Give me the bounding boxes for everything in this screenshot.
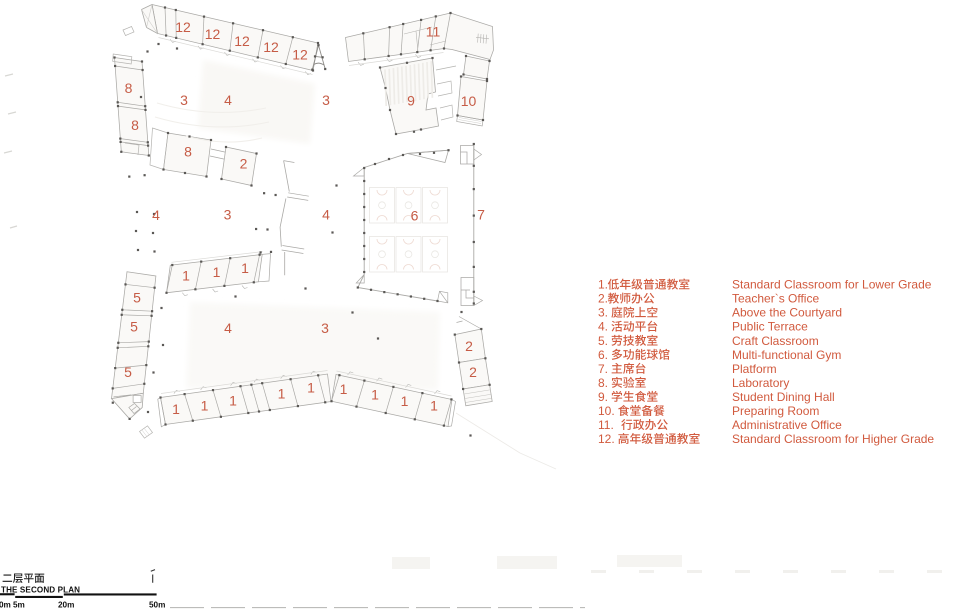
- svg-text:5: 5: [130, 319, 138, 335]
- svg-text:5m: 5m: [13, 601, 25, 610]
- svg-text:12: 12: [205, 26, 221, 42]
- svg-text:3: 3: [180, 92, 188, 108]
- svg-text:1: 1: [340, 381, 348, 397]
- svg-text:6: 6: [411, 208, 419, 224]
- svg-text:Platform: Platform: [732, 362, 777, 376]
- svg-text:2.: 2.: [598, 292, 608, 306]
- svg-text:4: 4: [224, 92, 232, 108]
- svg-text:1.: 1.: [598, 278, 608, 292]
- svg-text:11.: 11.: [598, 418, 620, 432]
- svg-text:5: 5: [124, 364, 132, 380]
- svg-text:9: 9: [407, 93, 415, 109]
- svg-text:1: 1: [241, 260, 249, 276]
- svg-text:8: 8: [131, 117, 139, 133]
- svg-text:5: 5: [133, 290, 141, 306]
- svg-text:3: 3: [224, 207, 232, 223]
- svg-text:11: 11: [426, 24, 441, 40]
- svg-text:Administrative Office: Administrative Office: [732, 418, 842, 432]
- svg-text:Multi-functional Gym: Multi-functional Gym: [732, 348, 841, 362]
- svg-text:10.: 10.: [598, 404, 618, 418]
- svg-text:Public Terrace: Public Terrace: [732, 320, 808, 334]
- svg-text:3: 3: [321, 320, 329, 336]
- svg-text:Above the Courtyard: Above the Courtyard: [732, 306, 842, 320]
- svg-text:1: 1: [182, 268, 190, 284]
- svg-text:12: 12: [292, 47, 308, 63]
- svg-text:9.: 9.: [598, 390, 611, 404]
- svg-text:4.: 4.: [598, 320, 611, 334]
- svg-text:Preparing Room: Preparing Room: [732, 404, 819, 418]
- svg-text:12: 12: [234, 33, 250, 49]
- svg-text:8: 8: [125, 80, 133, 96]
- svg-text:2: 2: [465, 338, 473, 354]
- svg-text:1: 1: [307, 380, 315, 396]
- svg-text:1: 1: [201, 398, 209, 414]
- svg-text:Teacher`s Office: Teacher`s Office: [732, 292, 819, 306]
- svg-text:4: 4: [322, 207, 330, 223]
- svg-text:THE SECOND PLAN: THE SECOND PLAN: [1, 585, 80, 594]
- svg-text:1: 1: [278, 386, 286, 402]
- svg-text:1: 1: [371, 387, 379, 403]
- svg-text:1: 1: [229, 393, 237, 409]
- svg-text:12: 12: [263, 39, 279, 55]
- svg-text:0m: 0m: [0, 601, 11, 610]
- svg-text:2: 2: [240, 156, 248, 172]
- svg-text:4: 4: [224, 320, 232, 336]
- svg-text:12: 12: [175, 19, 191, 35]
- svg-text:5.: 5.: [598, 334, 611, 348]
- svg-text:Craft Classroom: Craft Classroom: [732, 334, 819, 348]
- svg-text:1: 1: [430, 398, 438, 414]
- svg-text:20m: 20m: [58, 601, 74, 610]
- svg-text:7: 7: [477, 207, 485, 223]
- svg-text:Standard Classroom for Higher: Standard Classroom for Higher Grade: [732, 432, 934, 446]
- svg-text:1: 1: [172, 401, 180, 417]
- svg-text:10: 10: [461, 93, 477, 109]
- svg-text:4: 4: [152, 207, 160, 223]
- svg-text:7.: 7.: [598, 362, 611, 376]
- svg-text:Standard Classroom for Lower G: Standard Classroom for Lower Grade: [732, 278, 932, 292]
- svg-text:3.: 3.: [598, 306, 611, 320]
- svg-text:1: 1: [401, 393, 409, 409]
- svg-text:8: 8: [184, 144, 192, 160]
- svg-text:Student Dining Hall: Student Dining Hall: [732, 390, 835, 404]
- svg-text:2: 2: [469, 364, 477, 380]
- svg-text:1: 1: [213, 264, 221, 280]
- svg-text:6.: 6.: [598, 348, 611, 362]
- svg-text:50m: 50m: [149, 601, 165, 610]
- svg-text:12.: 12.: [598, 432, 618, 446]
- svg-text:Laboratory: Laboratory: [732, 376, 789, 390]
- svg-text:3: 3: [322, 92, 330, 108]
- svg-text:8.: 8.: [598, 376, 611, 390]
